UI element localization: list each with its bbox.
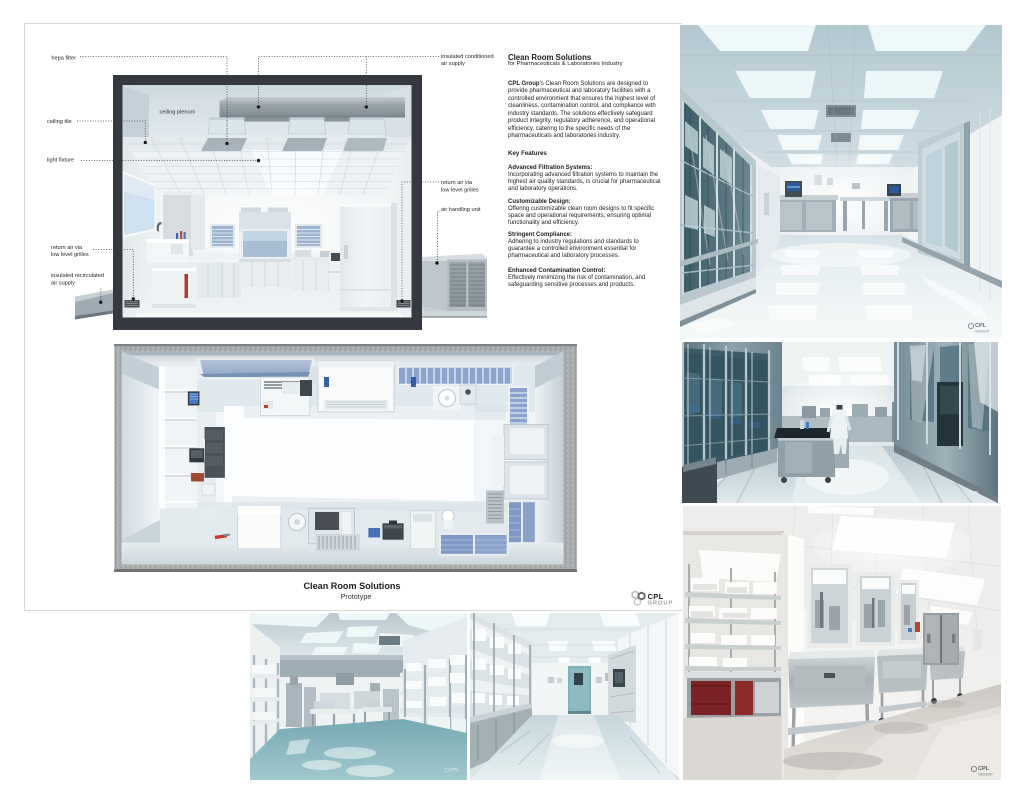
svg-text:air supply: air supply: [441, 61, 465, 67]
svg-text:air handling unit: air handling unit: [441, 207, 481, 213]
svg-text:insulated conditioned: insulated conditioned: [441, 54, 494, 60]
svg-text:CPL: CPL: [450, 767, 459, 772]
svg-text:GROUP: GROUP: [975, 328, 990, 333]
svg-text:GROUP: GROUP: [970, 497, 984, 501]
svg-text:light fixture: light fixture: [47, 158, 74, 164]
svg-text:return air via: return air via: [51, 245, 83, 251]
svg-text:GROUP: GROUP: [648, 601, 674, 607]
svg-text:air supply: air supply: [51, 280, 75, 286]
svg-text:insulated recirculated: insulated recirculated: [51, 273, 104, 279]
svg-text:CPL: CPL: [661, 767, 670, 772]
svg-text:GROUP: GROUP: [978, 772, 993, 777]
svg-text:return air via: return air via: [441, 180, 473, 186]
svg-text:ceiling plenum: ceiling plenum: [160, 110, 196, 116]
svg-text:low level grilles: low level grilles: [51, 252, 89, 258]
svg-text:ceiling tile: ceiling tile: [47, 119, 72, 125]
svg-text:hepa filter: hepa filter: [51, 56, 76, 62]
svg-text:low level grilles: low level grilles: [441, 187, 479, 193]
